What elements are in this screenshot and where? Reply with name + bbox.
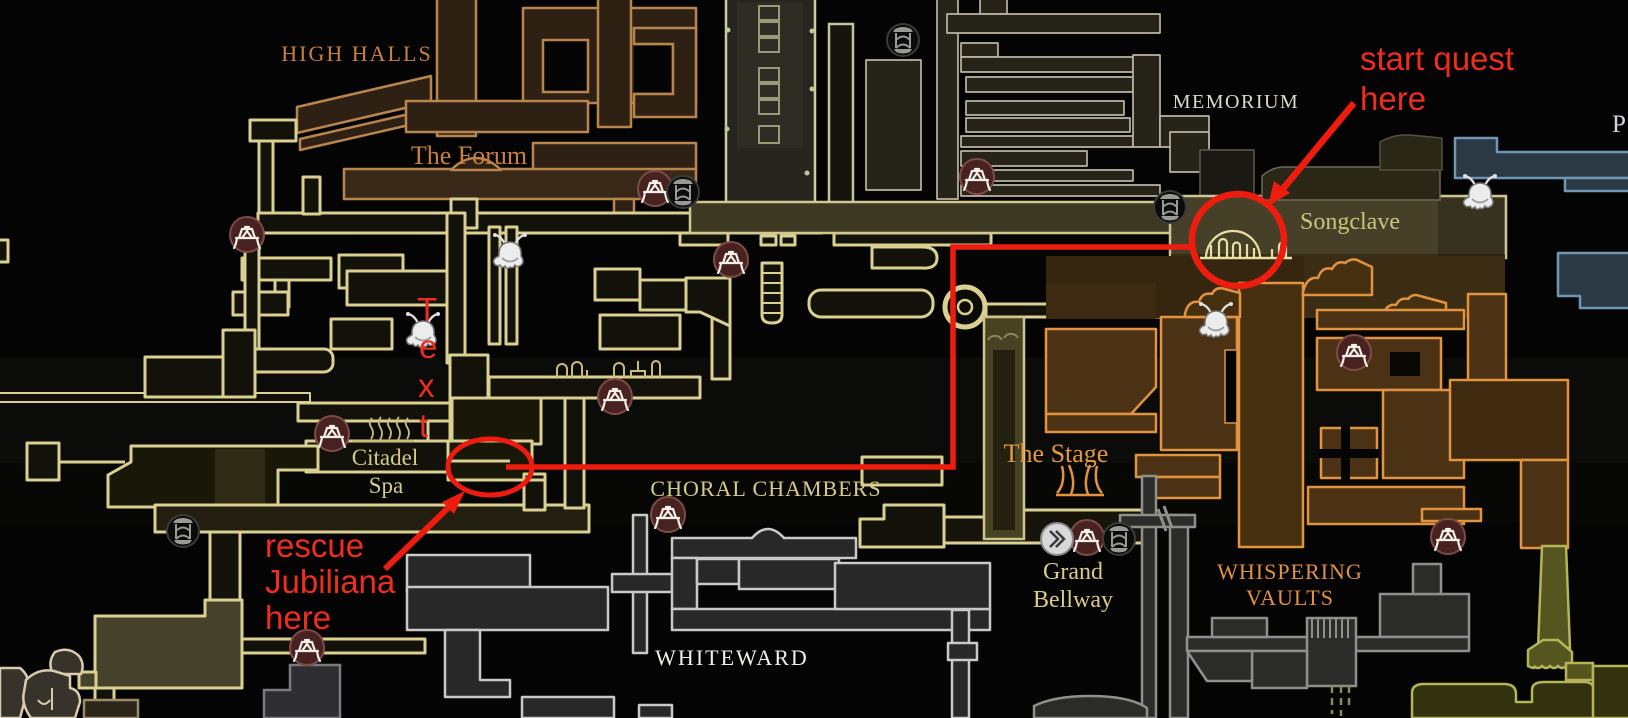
svg-text:Spa: Spa: [369, 473, 404, 498]
svg-text:Citadel: Citadel: [352, 445, 418, 470]
svg-text:here: here: [1360, 80, 1426, 117]
svg-text:MEMORIUM: MEMORIUM: [1173, 91, 1299, 113]
svg-text:x: x: [418, 367, 435, 404]
svg-text:start quest: start quest: [1360, 40, 1514, 77]
svg-text:The Forum: The Forum: [411, 141, 527, 170]
svg-text:Bellway: Bellway: [1033, 587, 1113, 613]
svg-text:VAULTS: VAULTS: [1246, 585, 1334, 610]
svg-text:rescue: rescue: [265, 527, 364, 564]
svg-text:Grand: Grand: [1043, 559, 1103, 585]
svg-text:The Stage: The Stage: [1004, 439, 1109, 468]
svg-text:t: t: [419, 407, 428, 444]
svg-text:CHORAL CHAMBERS: CHORAL CHAMBERS: [650, 476, 881, 501]
svg-text:here: here: [265, 599, 331, 636]
svg-text:WHISPERING: WHISPERING: [1217, 559, 1363, 584]
svg-text:P: P: [1612, 111, 1626, 138]
svg-text:HIGH HALLS: HIGH HALLS: [281, 41, 432, 66]
svg-text:WHITEWARD: WHITEWARD: [655, 645, 809, 670]
svg-text:e: e: [419, 328, 437, 365]
svg-text:T: T: [417, 291, 437, 328]
svg-text:Jubiliana: Jubiliana: [265, 563, 396, 600]
svg-text:Songclave: Songclave: [1300, 209, 1400, 235]
